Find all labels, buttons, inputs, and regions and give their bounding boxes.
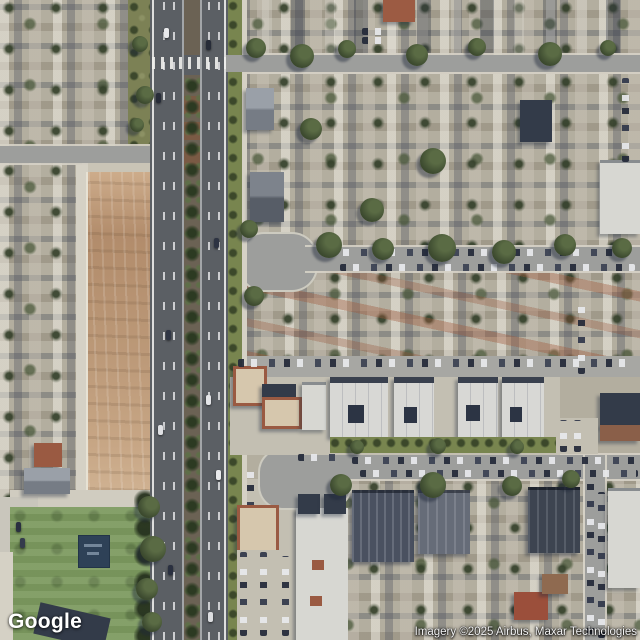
parked-cars — [560, 420, 567, 452]
palm-tree-median — [184, 76, 200, 640]
tree — [600, 40, 616, 56]
imagery-attribution: Imagery ©2025 Airbus, Maxar Technologies — [415, 626, 637, 638]
car — [206, 40, 211, 50]
parked-cars — [298, 454, 342, 461]
tree — [420, 148, 446, 174]
red-tile-courtyard-building — [237, 505, 279, 553]
tree — [420, 472, 446, 498]
crosswalk — [152, 57, 226, 69]
tree — [132, 36, 148, 52]
white-apartment-block — [394, 377, 434, 437]
parked-cars — [282, 556, 289, 636]
lane-marking — [173, 0, 175, 640]
courtyard-notch — [404, 407, 417, 423]
tree — [130, 118, 144, 132]
playground-equipment — [84, 544, 102, 547]
small-white-building — [302, 382, 326, 430]
median-strip — [184, 0, 200, 640]
parked-cars — [352, 457, 637, 464]
parked-cars — [360, 470, 638, 477]
white-roof-building — [600, 160, 640, 234]
white-apartment-block — [330, 377, 388, 437]
tree — [510, 440, 524, 454]
tree — [240, 220, 258, 238]
dark-apartment-block — [352, 490, 414, 562]
car — [16, 522, 21, 532]
parked-cars — [340, 264, 635, 271]
white-apartment-block — [458, 377, 498, 437]
parked-cars — [238, 359, 636, 367]
tree — [372, 238, 394, 260]
tree — [502, 476, 522, 496]
tree — [338, 40, 356, 58]
tree — [612, 238, 632, 258]
tree — [428, 234, 456, 262]
dark-roof-unit — [324, 494, 346, 514]
courtyard-notch — [312, 560, 324, 570]
parked-cars — [362, 28, 388, 35]
parked-cars — [260, 552, 267, 636]
parked-cars — [587, 482, 594, 634]
tree — [492, 240, 516, 264]
white-apartment-block — [502, 377, 544, 437]
dark-gable-building — [250, 172, 284, 222]
tree — [330, 474, 352, 496]
car — [214, 238, 219, 248]
courtyard-notch — [510, 407, 522, 422]
playground — [78, 535, 110, 568]
dark-roof-building-right-edge — [600, 393, 640, 427]
car — [158, 425, 163, 435]
car — [164, 28, 169, 38]
dark-roof-unit — [298, 494, 320, 514]
car — [20, 538, 25, 548]
lane-marking — [218, 0, 220, 640]
cream-apartment-building — [296, 508, 348, 640]
courtyard-notch — [466, 405, 480, 421]
tree — [316, 232, 342, 258]
car — [208, 612, 213, 622]
tree — [140, 536, 166, 562]
tree — [406, 44, 428, 66]
lot-access-path — [76, 165, 88, 495]
gray-roof-building — [24, 468, 70, 494]
gray-apartment-block — [418, 490, 470, 554]
tree — [468, 38, 486, 56]
car — [168, 565, 173, 575]
red-tile-building — [262, 397, 302, 429]
parked-cars — [362, 37, 388, 44]
satellite-map-canvas[interactable]: Google Imagery ©2025 Airbus, Maxar Techn… — [0, 0, 640, 640]
tree — [300, 118, 322, 140]
tree — [538, 42, 562, 66]
parked-cars — [240, 552, 247, 636]
car — [166, 330, 171, 340]
tree — [290, 44, 314, 68]
lane-marking — [200, 0, 202, 640]
tree — [562, 470, 580, 488]
car — [206, 395, 211, 405]
tree — [138, 496, 160, 518]
courtyard-notch — [310, 596, 322, 606]
dark-apartment-block — [528, 487, 580, 553]
lane-marking — [208, 0, 210, 640]
gray-gable-building — [246, 88, 274, 130]
tree — [554, 234, 576, 256]
street-top-right — [226, 55, 640, 72]
google-logo[interactable]: Google — [8, 610, 82, 634]
tree — [244, 286, 264, 306]
parked-cars-right-edge — [622, 78, 629, 162]
tree — [430, 438, 446, 454]
intersection-apron — [226, 55, 256, 72]
tan-roof-house — [542, 574, 568, 594]
dark-roof-strip — [262, 384, 296, 397]
tree — [142, 612, 162, 632]
tree — [350, 440, 364, 454]
street-top-left — [0, 146, 152, 163]
red-roof-house — [383, 0, 415, 22]
car — [216, 470, 221, 480]
parked-cars — [598, 492, 605, 638]
parked-cars — [574, 420, 581, 452]
courtyard-notch — [348, 405, 364, 423]
tree — [246, 38, 266, 58]
dark-roof-house — [520, 100, 552, 142]
red-band-building — [600, 425, 640, 441]
tree — [136, 86, 154, 104]
white-apartment-right-edge — [608, 488, 640, 588]
tree — [360, 198, 384, 222]
road-edge-line — [224, 0, 226, 640]
tree — [136, 578, 158, 600]
residential-block-top-right — [228, 0, 640, 57]
red-roof-house — [514, 592, 548, 620]
playground-equipment — [87, 552, 99, 555]
car — [156, 93, 161, 103]
red-roof-house — [34, 443, 62, 467]
vacant-dirt-lot — [88, 172, 150, 490]
